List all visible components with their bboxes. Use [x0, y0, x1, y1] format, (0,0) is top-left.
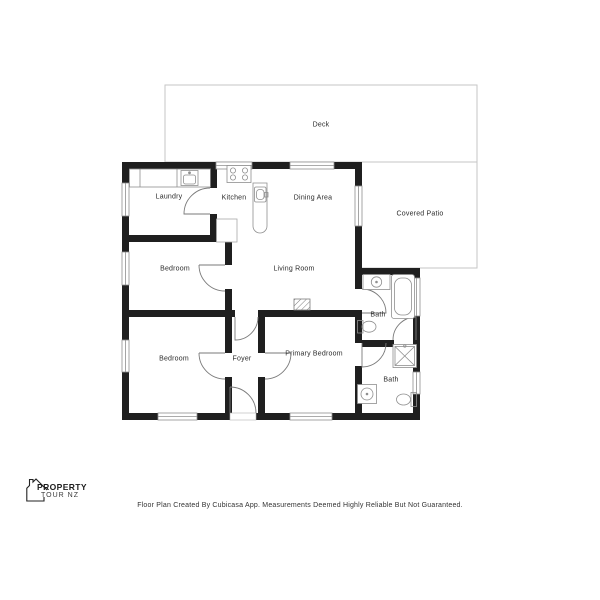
logo-text-tour-nz: TOUR NZ: [41, 492, 79, 499]
logo-text-property: PROPERTY: [37, 482, 87, 492]
door-arc-bedroom-lower: [199, 353, 225, 379]
room-label-bath-ensuite: Bath: [383, 377, 398, 384]
wall-segment: [355, 226, 362, 275]
wall-segment: [122, 372, 129, 420]
kitchen-island: [253, 183, 267, 233]
wall-segment: [258, 310, 362, 317]
door-arc-bath-main-rear: [393, 317, 416, 340]
wall-segment: [355, 162, 362, 186]
wall-segment: [122, 162, 129, 183]
disclaimer-text: Floor Plan Created By Cubicasa App. Meas…: [0, 502, 600, 509]
room-label-kitchen: Kitchen: [222, 195, 247, 202]
room-label-deck: Deck: [313, 122, 330, 129]
wall-segment: [332, 413, 420, 420]
toilet-icon: [397, 394, 411, 405]
bathtub-icon: [392, 275, 415, 319]
wall-segment: [258, 317, 265, 353]
kitchen-closet: [217, 219, 238, 242]
property-tour-nz-logo: PROPERTY TOUR NZ: [26, 474, 116, 504]
door-arc-laundry: [184, 188, 210, 214]
wall-segment: [225, 242, 232, 265]
wall-segment: [225, 377, 232, 413]
door-arc-bedroom-left: [199, 265, 225, 291]
room-label-living-room: Living Room: [273, 266, 314, 273]
room-label-bedroom-lower: Bedroom: [159, 356, 189, 363]
wall-segment: [122, 310, 235, 317]
wall-segment: [355, 268, 420, 275]
vanity-sink-icon: [366, 393, 368, 395]
room-label-primary-bedroom: Primary Bedroom: [285, 351, 342, 358]
toilet-icon: [362, 321, 376, 332]
wall-segment: [122, 216, 129, 252]
wall-segment: [225, 317, 232, 353]
door-arc-bath-main: [362, 289, 386, 313]
wall-segment: [362, 340, 394, 347]
wall-segment: [258, 377, 265, 413]
door-arc-front-entry: [230, 387, 256, 413]
wall-segment: [355, 312, 362, 317]
room-label-laundry: Laundry: [156, 194, 183, 201]
wall-segment: [122, 162, 216, 169]
room-label-bedroom-left: Bedroom: [160, 266, 190, 273]
wall-segment: [256, 413, 290, 420]
laundry-sink-icon: [189, 172, 191, 174]
wall-segment: [122, 235, 217, 242]
door-arc-foyer: [235, 317, 258, 340]
floor-plan-drawing: [0, 0, 600, 600]
room-label-foyer: Foyer: [233, 356, 252, 363]
wall-segment: [252, 162, 290, 169]
floor-plan-page: Deck Laundry Kitchen Dining Area Covered…: [0, 0, 600, 600]
room-label-bath-main: Bath: [370, 312, 385, 319]
wall-segment: [122, 413, 158, 420]
fireplace-icon: [294, 299, 310, 310]
room-label-dining-area: Dining Area: [294, 195, 332, 202]
room-label-covered-patio: Covered Patio: [397, 211, 444, 218]
front-door-threshold: [230, 413, 256, 420]
wall-segment: [355, 275, 362, 289]
vanity-sink-icon: [376, 281, 378, 283]
wall-segment: [197, 413, 230, 420]
stove-icon: [227, 166, 251, 183]
